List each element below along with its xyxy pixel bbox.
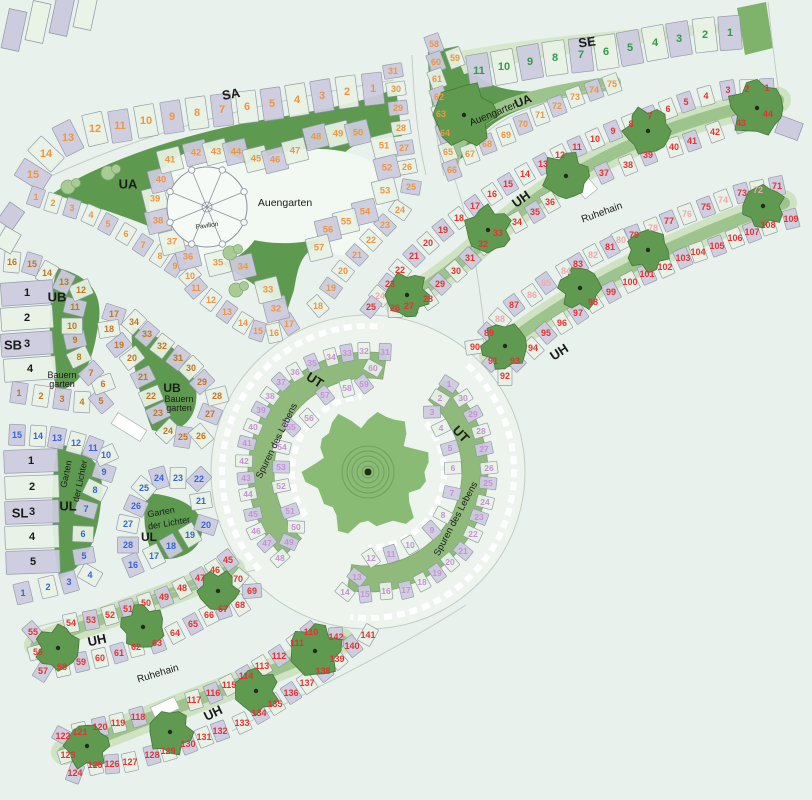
plot-number-UA-22: 22 — [366, 235, 376, 245]
plot-number-UA-71: 71 — [535, 110, 545, 120]
plot-number-UA-31: 31 — [388, 66, 398, 76]
plot-number-UB-16: 16 — [7, 257, 17, 267]
plot-number-UA-37: 37 — [167, 237, 178, 248]
plot-number-UH-98: 98 — [588, 297, 598, 307]
plot-number-UL-10: 10 — [101, 450, 111, 460]
plot-number-UH-124: 124 — [67, 768, 82, 778]
plot-number-SA-13: 13 — [62, 132, 74, 144]
plot-number-UB-33: 33 — [142, 329, 152, 339]
plot-number-UH-31: 31 — [465, 253, 475, 263]
plot-number-UA-68: 68 — [482, 139, 492, 149]
plot-number-UH-25: 25 — [366, 302, 376, 312]
plot-number-UB-6: 6 — [100, 379, 105, 389]
plot-number-UA-17: 17 — [284, 319, 294, 329]
plot-number-UA-75: 75 — [607, 79, 617, 89]
plot-number-UH-19: 19 — [438, 225, 448, 235]
plot-number-UA-61: 61 — [432, 74, 442, 84]
plot-number-SL-1: 1 — [28, 455, 34, 467]
plot-number-UA-4: 4 — [88, 210, 93, 220]
cemetery-map: 1234567891011121314151234567891011123456… — [0, 0, 812, 800]
plot-number-UA-69: 69 — [501, 130, 511, 140]
plot-number-UL-28: 28 — [123, 540, 133, 550]
plot-number-UL-9: 9 — [101, 467, 106, 477]
plot-number-UT-51: 51 — [285, 506, 295, 516]
plot-number-UA-3: 3 — [69, 203, 74, 213]
plot-number-UH-46: 46 — [210, 565, 220, 575]
plot-number-UH-59: 59 — [76, 657, 86, 667]
label-uh-26: UH — [547, 341, 571, 364]
plot-number-UA-62: 62 — [434, 92, 444, 102]
plot-number-UH-140: 140 — [344, 641, 359, 651]
plot-number-UH-142: 142 — [328, 632, 343, 642]
plot-number-UH-113: 113 — [255, 661, 270, 671]
label-garten-12: garten — [166, 403, 192, 413]
plot-number-UL-15: 15 — [12, 430, 22, 440]
plot-number-UH-121: 121 — [72, 727, 87, 737]
plot-number-UT-49: 49 — [284, 537, 294, 547]
plot-number-UA-53: 53 — [380, 186, 391, 197]
plot-number-UH-37: 37 — [599, 168, 609, 178]
plot-number-UA-24: 24 — [395, 205, 405, 215]
plot-number-UH-58: 58 — [57, 662, 67, 672]
plot-number-UH-108: 108 — [760, 220, 775, 230]
plot-number-UB-25: 25 — [178, 432, 188, 442]
plot-number-UH-89: 89 — [484, 328, 494, 338]
plot-number-UH-3: 3 — [725, 85, 730, 95]
plot-number-UT-41: 41 — [242, 438, 252, 448]
plot-number-UA-66: 66 — [447, 165, 457, 175]
plot-number-UT-59: 59 — [359, 379, 369, 389]
plot-number-UT-25: 25 — [483, 478, 493, 488]
plot-number-UH-77: 77 — [664, 216, 674, 226]
label-ul-18: UL — [141, 530, 157, 544]
plot-number-SE-5: 5 — [627, 42, 633, 54]
plot-number-SE-2: 2 — [702, 29, 708, 41]
plot-number-UL-3: 3 — [66, 577, 71, 587]
plot-number-UH-94: 94 — [528, 343, 538, 353]
map-svg: 1234567891011121314151234567891011123456… — [0, 0, 812, 800]
plot-number-UA-5: 5 — [105, 219, 110, 229]
plot-number-UH-13: 13 — [538, 159, 548, 169]
plot-number-SA-11: 11 — [114, 120, 126, 132]
plot-number-UL-12: 12 — [71, 438, 81, 448]
plot-number-UH-18: 18 — [454, 213, 464, 223]
plot-number-UH-78: 78 — [648, 223, 658, 233]
plot-number-UT-27: 27 — [479, 444, 489, 454]
plot-number-UH-87: 87 — [509, 300, 519, 310]
plot-number-UB-18: 18 — [104, 324, 114, 334]
plot-number-SA-12: 12 — [89, 123, 101, 135]
plot-number-UB-21: 21 — [138, 372, 148, 382]
plot-number-UA-14: 14 — [238, 318, 248, 328]
plot-number-UH-138: 138 — [315, 666, 330, 676]
plot-number-UB-34: 34 — [129, 317, 139, 327]
plot-number-UH-49: 49 — [159, 592, 169, 602]
plot-number-UH-28: 28 — [423, 294, 433, 304]
plot-number-UH-133: 133 — [234, 718, 249, 728]
plot-number-UT-35: 35 — [307, 358, 317, 368]
plot-number-UB-1: 1 — [16, 388, 21, 398]
plot-number-UH-22: 22 — [395, 265, 405, 275]
plot-number-UA-52: 52 — [382, 163, 393, 174]
plot-number-UH-21: 21 — [409, 251, 419, 261]
plot-number-UA-30: 30 — [391, 84, 401, 94]
plot-number-UA-46: 46 — [270, 155, 281, 166]
plot-number-UH-30: 30 — [451, 266, 461, 276]
plot-number-UT-50: 50 — [291, 522, 301, 532]
plot-number-UA-21: 21 — [352, 250, 362, 260]
plot-number-UH-126: 126 — [104, 759, 119, 769]
plot-number-UA-16: 16 — [269, 328, 279, 338]
plot-number-UA-25: 25 — [406, 182, 416, 192]
plot-number-UH-111: 111 — [290, 638, 304, 648]
plot-number-UH-40: 40 — [669, 142, 679, 152]
plot-number-UH-74: 74 — [718, 195, 728, 205]
plot-number-UA-12: 12 — [206, 295, 216, 305]
plot-number-UA-29: 29 — [393, 103, 403, 113]
plot-number-SA-10: 10 — [140, 115, 152, 127]
plot-number-UH-82: 82 — [588, 250, 598, 260]
plot-number-UT-29: 29 — [468, 409, 478, 419]
plot-number-UH-96: 96 — [557, 318, 567, 328]
plot-number-UH-130: 130 — [180, 739, 195, 749]
plot-number-UH-125: 125 — [87, 760, 102, 770]
plot-number-SE-9: 9 — [527, 56, 533, 68]
label-garten-9: garten — [49, 379, 75, 389]
plot-number-SE-1: 1 — [727, 27, 733, 39]
plot-number-UB-4: 4 — [79, 397, 84, 407]
plot-number-UH-45: 45 — [223, 555, 233, 565]
plot-number-UH-35: 35 — [530, 207, 540, 217]
plot-number-SA-3: 3 — [319, 90, 325, 102]
plot-number-SA-14: 14 — [40, 148, 53, 160]
plot-number-UL-26: 26 — [131, 501, 141, 511]
plot-number-SE-10: 10 — [498, 61, 510, 73]
filler-cell-5 — [0, 226, 21, 254]
plot-number-UB-26: 26 — [196, 431, 206, 441]
plot-number-UA-55: 55 — [341, 217, 352, 228]
plot-number-UT-24: 24 — [480, 497, 490, 507]
plot-number-UH-65: 65 — [188, 619, 198, 629]
plot-number-UA-60: 60 — [431, 57, 441, 67]
plot-number-UT-16: 16 — [381, 586, 391, 596]
plot-number-UT-17: 17 — [401, 585, 411, 595]
plot-number-UB-9: 9 — [72, 335, 77, 345]
plot-number-UT-56: 56 — [304, 413, 314, 423]
plot-number-UA-15: 15 — [253, 326, 263, 336]
plot-number-UB-19: 19 — [114, 340, 124, 350]
plot-number-UH-116: 116 — [206, 688, 221, 698]
plot-number-UT-30: 30 — [458, 393, 468, 403]
plot-number-UB-3: 3 — [59, 394, 64, 404]
plot-number-UB-24: 24 — [163, 426, 173, 436]
plot-number-UH-60: 60 — [95, 653, 105, 663]
plot-number-UH-51: 51 — [123, 604, 133, 614]
plot-number-UH-26: 26 — [390, 303, 400, 313]
plot-number-UH-90: 90 — [470, 342, 480, 352]
plot-number-UB-22: 22 — [146, 391, 156, 401]
road-line-1 — [412, 55, 426, 175]
plot-number-UH-129: 129 — [160, 746, 175, 756]
plot-number-UT-58: 58 — [342, 383, 352, 393]
plot-number-UH-24: 24 — [375, 291, 385, 301]
plot-number-UA-74: 74 — [589, 85, 599, 95]
plot-number-UA-58: 58 — [429, 39, 439, 49]
plot-number-UH-112: 112 — [272, 651, 287, 661]
plot-number-UA-19: 19 — [326, 283, 336, 293]
plot-number-UB-27: 27 — [205, 409, 215, 419]
plot-number-UA-1: 1 — [33, 192, 38, 202]
plot-number-UA-32: 32 — [271, 304, 282, 315]
plot-number-UT-20: 20 — [445, 557, 455, 567]
plot-number-UH-110: 110 — [304, 627, 319, 637]
plot-number-UT-33: 33 — [342, 348, 352, 358]
filler-cell-0 — [1, 9, 27, 52]
label-ub-10: UB — [163, 381, 181, 395]
plot-number-UH-95: 95 — [541, 328, 551, 338]
plot-number-UH-76: 76 — [682, 209, 692, 219]
plot-number-UA-13: 13 — [222, 307, 232, 317]
plot-number-UA-57: 57 — [314, 243, 325, 254]
plot-number-UL-8: 8 — [92, 485, 97, 495]
plot-number-UH-12: 12 — [555, 150, 565, 160]
filler-cell-2 — [49, 0, 75, 36]
plot-number-UH-8: 8 — [628, 119, 633, 129]
plot-number-SA-7: 7 — [219, 104, 225, 116]
plot-number-SL-5: 5 — [30, 556, 36, 568]
plot-number-UT-7: 7 — [450, 488, 455, 498]
plot-number-UL-6: 6 — [80, 529, 85, 539]
plot-number-UA-2: 2 — [50, 198, 55, 208]
plot-number-UA-56: 56 — [323, 225, 334, 236]
plot-number-UH-4: 4 — [703, 91, 708, 101]
plot-number-UB-30: 30 — [186, 363, 196, 373]
plot-number-UB-14: 14 — [42, 268, 52, 278]
plot-number-UT-40: 40 — [248, 422, 258, 432]
plot-number-UT-6: 6 — [451, 463, 456, 473]
label-ruhehain-30: Ruhehain — [136, 662, 180, 685]
plot-number-UH-102: 102 — [657, 262, 672, 272]
plot-number-SE-3: 3 — [676, 33, 682, 45]
plot-number-SA-5: 5 — [269, 98, 275, 110]
plot-number-UH-68: 68 — [235, 600, 245, 610]
plot-number-UH-93: 93 — [510, 356, 520, 366]
plot-number-UH-70: 70 — [233, 574, 243, 584]
plot-number-UA-70: 70 — [518, 119, 528, 129]
plot-number-UH-54: 54 — [66, 618, 76, 628]
plot-number-SB-3: 3 — [24, 338, 30, 350]
plot-number-UB-7: 7 — [88, 368, 93, 378]
plot-number-UH-97: 97 — [573, 308, 583, 318]
plot-number-UH-135: 135 — [267, 699, 282, 709]
plot-number-UA-51: 51 — [379, 141, 390, 152]
plot-number-UA-10: 10 — [185, 271, 195, 281]
plot-number-UT-48: 48 — [275, 553, 285, 563]
plot-number-UH-47: 47 — [195, 573, 205, 583]
plot-number-UH-79: 79 — [629, 230, 639, 240]
plot-number-UT-60: 60 — [368, 363, 378, 373]
plot-number-UH-48: 48 — [177, 583, 187, 593]
plot-number-UT-22: 22 — [468, 529, 478, 539]
plot-number-UL-5: 5 — [81, 551, 86, 561]
plot-number-UH-11: 11 — [572, 142, 582, 152]
plot-number-UH-117: 117 — [187, 695, 202, 705]
plot-number-UT-43: 43 — [241, 473, 251, 483]
plot-number-UB-29: 29 — [197, 377, 207, 387]
plot-number-UH-73: 73 — [737, 188, 747, 198]
label-ua-2: UA — [119, 177, 138, 192]
plot-number-UL-21: 21 — [196, 496, 206, 506]
plot-number-UH-33: 33 — [493, 228, 503, 238]
label-se-1: SE — [577, 33, 597, 50]
plot-number-UH-141: 141 — [360, 630, 375, 640]
plot-number-UA-34: 34 — [238, 262, 249, 273]
plot-number-SA-15: 15 — [27, 169, 39, 181]
filler-cell-3 — [73, 0, 99, 30]
plot-number-UH-32: 32 — [478, 239, 488, 249]
plot-number-UH-134: 134 — [251, 708, 266, 718]
plot-number-UA-27: 27 — [399, 143, 409, 153]
plot-number-UH-99: 99 — [606, 287, 616, 297]
label-sb-13: SB — [4, 338, 22, 353]
label-ub-7: UB — [48, 290, 67, 305]
plot-number-UB-32: 32 — [157, 341, 167, 351]
plot-number-SE-8: 8 — [552, 52, 558, 64]
plot-number-UH-20: 20 — [423, 238, 433, 248]
plot-number-UA-65: 65 — [443, 147, 453, 157]
filler-cell-1 — [25, 1, 51, 44]
plot-number-UH-115: 115 — [222, 680, 237, 690]
plot-number-UT-32: 32 — [359, 346, 369, 356]
plot-number-SE-11: 11 — [473, 65, 485, 77]
plot-number-UA-33: 33 — [263, 285, 274, 296]
plot-number-UA-23: 23 — [380, 220, 390, 230]
plot-number-UT-18: 18 — [417, 577, 427, 587]
plot-number-UH-27: 27 — [404, 301, 414, 311]
plot-number-SE-6: 6 — [603, 46, 609, 58]
white-slot-1 — [111, 412, 147, 441]
plot-number-UH-52: 52 — [105, 610, 115, 620]
plot-number-UL-27: 27 — [123, 519, 133, 529]
plot-number-SB-1: 1 — [24, 287, 30, 299]
plot-number-UT-4: 4 — [439, 423, 444, 433]
plot-number-UH-101: 101 — [639, 269, 654, 279]
plot-number-UT-38: 38 — [265, 391, 275, 401]
plot-number-UL-4: 4 — [87, 570, 92, 580]
plot-number-UT-11: 11 — [387, 549, 396, 559]
plot-number-SA-9: 9 — [169, 111, 175, 123]
plot-number-UT-28: 28 — [476, 426, 486, 436]
plot-number-UL-1: 1 — [20, 588, 25, 598]
plot-number-UH-1: 1 — [764, 83, 769, 93]
plot-number-UT-37: 37 — [276, 377, 286, 387]
plot-number-UB-20: 20 — [127, 353, 137, 363]
plot-number-UH-50: 50 — [141, 598, 151, 608]
plot-number-UB-28: 28 — [212, 391, 222, 401]
label-sa-0: SA — [221, 85, 242, 103]
plot-number-UH-63: 63 — [152, 638, 162, 648]
plot-number-UL-17: 17 — [149, 551, 159, 561]
plot-number-UL-18: 18 — [166, 541, 176, 551]
plot-number-UA-54: 54 — [360, 207, 371, 218]
plot-number-UH-34: 34 — [512, 217, 522, 227]
plot-number-UH-88: 88 — [495, 314, 505, 324]
plot-number-UH-9: 9 — [610, 126, 615, 136]
plot-number-UL-13: 13 — [52, 433, 62, 443]
plot-number-UL-23: 23 — [173, 473, 183, 483]
pavilion-icon — [167, 167, 247, 247]
label-ruhehain-29: Ruhehain — [580, 201, 624, 226]
plot-number-UH-72: 72 — [753, 185, 763, 195]
plot-number-UH-104: 104 — [690, 247, 705, 257]
plot-number-SA-6: 6 — [244, 101, 250, 113]
plot-number-UH-14: 14 — [520, 169, 530, 179]
plot-number-UH-71: 71 — [772, 181, 782, 191]
plot-number-UH-41: 41 — [687, 136, 697, 146]
plot-number-UH-83: 83 — [573, 259, 583, 269]
plot-number-UB-13: 13 — [59, 277, 69, 287]
filler-cell-4 — [0, 202, 25, 230]
plot-number-UB-11: 11 — [70, 302, 80, 312]
plot-number-UT-36: 36 — [290, 367, 300, 377]
plot-number-UA-36: 36 — [183, 252, 194, 263]
plot-number-UH-109: 109 — [783, 214, 798, 224]
plot-number-UH-67: 67 — [218, 604, 228, 614]
plot-number-UA-45: 45 — [251, 154, 262, 165]
plot-number-UL-24: 24 — [154, 473, 164, 483]
plot-number-UH-15: 15 — [503, 179, 513, 189]
plot-number-UT-47: 47 — [262, 538, 272, 548]
plot-number-UH-75: 75 — [701, 202, 711, 212]
plot-number-UH-81: 81 — [605, 242, 615, 252]
plot-number-UH-85: 85 — [541, 278, 551, 288]
plot-number-SL-2: 2 — [29, 481, 35, 493]
plot-number-UA-48: 48 — [311, 132, 322, 143]
plot-number-UA-50: 50 — [353, 128, 364, 139]
plot-number-UL-22: 22 — [194, 474, 204, 484]
plot-number-UH-103: 103 — [675, 253, 690, 263]
label-auengarten-3: Auengarten — [258, 197, 312, 209]
plot-number-UL-11: 11 — [88, 443, 98, 453]
plot-number-UA-44: 44 — [231, 147, 242, 158]
plot-number-UB-31: 31 — [173, 353, 183, 363]
plot-number-UT-14: 14 — [340, 587, 350, 597]
plot-number-UH-91: 91 — [488, 356, 498, 366]
plot-number-SE-4: 4 — [652, 37, 659, 49]
plot-number-UB-8: 8 — [76, 352, 81, 362]
plot-number-UH-132: 132 — [212, 726, 227, 736]
plot-number-UH-84: 84 — [561, 266, 571, 276]
plot-number-UA-63: 63 — [436, 109, 446, 119]
plot-number-UA-8: 8 — [157, 251, 162, 261]
bush-icon — [229, 282, 249, 298]
plot-number-UA-28: 28 — [396, 123, 406, 133]
plot-number-UT-19: 19 — [432, 568, 442, 578]
plot-number-UT-53: 53 — [276, 462, 286, 472]
plot-number-UA-43: 43 — [211, 147, 222, 158]
plot-number-SB-2: 2 — [24, 312, 30, 324]
plot-number-UH-123: 123 — [60, 750, 75, 760]
plot-number-UT-39: 39 — [256, 405, 266, 415]
plot-number-UB-17: 17 — [109, 309, 119, 319]
plot-number-UH-69: 69 — [247, 586, 257, 596]
plot-number-UT-34: 34 — [326, 352, 336, 362]
plot-number-UA-7: 7 — [140, 240, 145, 250]
plot-number-UT-21: 21 — [458, 546, 468, 556]
plot-number-UH-56: 56 — [33, 647, 43, 657]
plot-number-UH-29: 29 — [435, 279, 445, 289]
plot-number-UA-11: 11 — [191, 283, 201, 293]
